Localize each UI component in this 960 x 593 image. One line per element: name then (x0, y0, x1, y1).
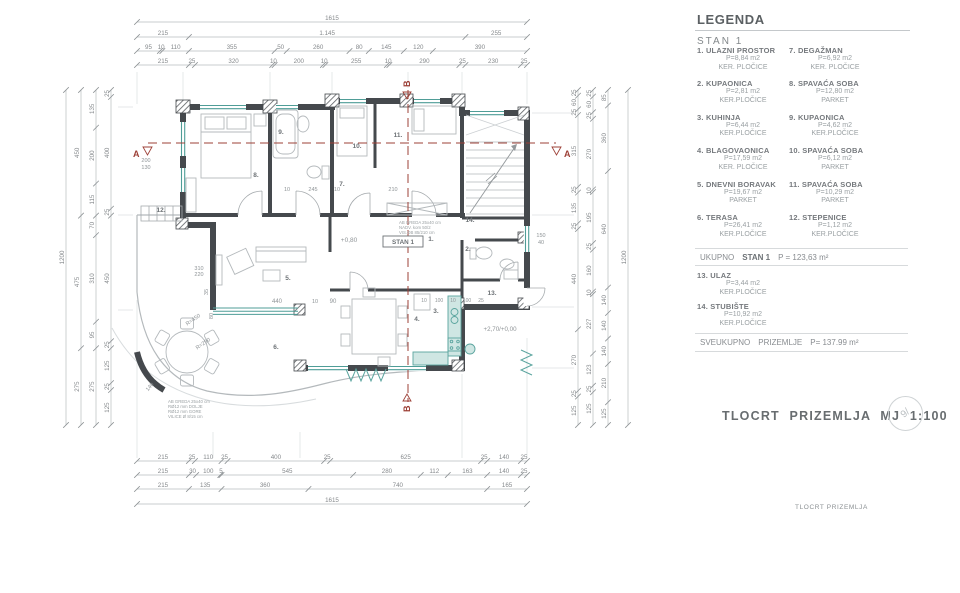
bed (201, 114, 266, 178)
dimension-text: 640 (601, 224, 608, 235)
dimension-text: 120 (413, 44, 424, 51)
room-number-label: 3. (433, 308, 439, 315)
dimension-text: 25 (104, 89, 111, 96)
dimension-text: 95 (89, 331, 96, 338)
legend-entry: 11. SPAVAĆA SOBAP=10,29 m2PARKET (789, 180, 897, 206)
dimension-text: 1615 (325, 15, 339, 22)
dimension-text: 1615 (325, 497, 339, 504)
section-letter-b: B (402, 405, 412, 412)
divider (695, 351, 908, 352)
plan-dimension-text: 40 (538, 240, 544, 246)
legend-entry: 7. DEGAŽMANP=6,92 m2KER. PLOČICE (789, 46, 897, 72)
dimension-text: 25 (571, 222, 578, 229)
dimension-text: 275 (74, 381, 81, 392)
dimension-text: 25 (571, 108, 578, 115)
plan-dimension-text: +2,70/+0,00 (483, 326, 517, 333)
dimension-text: 135 (200, 482, 211, 489)
room-number-label: 9. (278, 129, 284, 136)
sink (297, 116, 309, 132)
plan-dimension-text: 100 (463, 298, 472, 304)
wardrobe (186, 178, 196, 212)
dimension-text: 140 (499, 454, 510, 461)
dimension-text: 210 (601, 377, 608, 388)
plan-dimension-text: 10 (421, 298, 427, 304)
grand-scope: PRIZEMLJE (758, 338, 802, 347)
plan-dimension-text: 25 (478, 298, 484, 304)
room-number-label: 2. (465, 246, 471, 253)
dimension-text: 215 (158, 30, 169, 37)
dimension-text: 85 (601, 94, 608, 101)
dimension-text: 195 (586, 212, 593, 223)
room-number-label: 7. (339, 181, 345, 188)
dimension-text: 112 (429, 468, 439, 475)
plan-dimension-text: 35 (204, 289, 210, 295)
plan-dimension-text: 100 (435, 298, 444, 304)
legend-entry-floor: PARKET (789, 164, 881, 173)
dimension-text: 25 (188, 454, 195, 461)
legend-entry-name: 9. KUPAONICA (789, 113, 897, 122)
wardrobe-x (387, 203, 447, 215)
dimension-text: 10 (586, 187, 593, 194)
legend-entry: 13. ULAZP=3,44 m2KER.PLOČICE (697, 271, 805, 297)
dimension-text: 160 (586, 265, 593, 276)
dimension-text: 320 (228, 58, 239, 65)
section-marker-triangle (552, 147, 561, 155)
legend-entry-area: P=6,92 m2 (789, 55, 881, 64)
dimension-text: 60 (586, 100, 593, 107)
room-number-label: 5. (285, 275, 291, 282)
dimension-text: 215 (158, 482, 169, 489)
window (470, 110, 504, 116)
dimension-text: 25 (221, 454, 228, 461)
plan-dimension-text: 440 (272, 299, 283, 305)
window (414, 98, 440, 104)
dimension-text: 25 (459, 58, 466, 65)
divider (695, 248, 908, 249)
room-number-label: 13. (487, 290, 496, 297)
dimension-text: 215 (158, 454, 169, 461)
section-marker-triangle (403, 394, 411, 401)
legend-entry-name: 12. STEPENICE (789, 213, 897, 222)
window (388, 365, 426, 371)
window (200, 104, 246, 110)
outer-wall-left (183, 104, 213, 310)
legend-entry-area: P=26,41 m2 (697, 222, 789, 231)
section-letter-b: B (402, 80, 412, 87)
dimension-text: 60 (571, 99, 578, 106)
window (276, 104, 298, 110)
legend-entry-area: P=3,44 m2 (697, 280, 789, 289)
total-unit: STAN 1 (742, 253, 770, 262)
dimension-text: 10 (385, 58, 392, 65)
dimension-text: 10 (270, 58, 277, 65)
room-number-label: 8. (253, 172, 259, 179)
plan-dimension-text: 90 (330, 299, 337, 305)
tv-shelf (216, 255, 222, 285)
dimension-text: 200 (294, 58, 305, 65)
coffee-table (263, 270, 280, 281)
dimension-text: 355 (227, 44, 238, 51)
dimension-text: 25 (586, 112, 593, 119)
dimension-text: 400 (271, 454, 282, 461)
dimension-text: 25 (586, 89, 593, 96)
legend-entry-name: 10. SPAVAĆA SOBA (789, 146, 897, 155)
room-number-label: 6. (273, 344, 279, 351)
section-letter-a: A (564, 149, 571, 159)
sofa (256, 247, 306, 262)
dimension-text: 200 (89, 150, 96, 161)
plan-dimension-text: 10 (312, 299, 318, 305)
dimension-text: 1200 (621, 250, 628, 264)
dimension-text: 25 (104, 383, 111, 390)
room-number-label: 1. (428, 236, 434, 243)
room-number-label: 10. (352, 143, 361, 150)
legend-title: LEGENDA (697, 12, 765, 27)
dimension-text: 10 (321, 58, 328, 65)
staircase (466, 115, 524, 214)
window (180, 168, 186, 192)
dimension-text: 110 (171, 44, 181, 51)
toilet (470, 247, 492, 259)
dimension-text: 1.145 (319, 30, 335, 37)
legend-entry-area: P=6,12 m2 (789, 155, 881, 164)
legend-entry: 8. SPAVAĆA SOBAP=12,80 m2PARKET (789, 79, 897, 105)
windows (180, 98, 530, 372)
legend-entry-name: 7. DEGAŽMAN (789, 46, 897, 55)
dimension-text: 280 (382, 468, 393, 475)
dimension-text: 80 (356, 44, 363, 51)
dimension-text: 275 (89, 381, 96, 392)
dimension-text: 625 (400, 454, 411, 461)
dimension-text: 25 (586, 385, 593, 392)
glass-wall (213, 308, 298, 314)
dimension-text: 270 (571, 354, 578, 365)
legend-entry-floor: KER. PLOČICE (789, 64, 881, 73)
entrance-door (524, 288, 546, 306)
plan-dimension-text: 245 (308, 187, 317, 193)
window (340, 98, 366, 104)
dimension-text: 125 (586, 403, 593, 414)
dimension-text: 290 (419, 58, 430, 65)
plan-inner-dimensions: +0,80+2,70/+0,004409010R=450R=2903102203… (141, 158, 545, 393)
legend-entry-name: 13. ULAZ (697, 271, 805, 280)
dimension-text: 310 (89, 273, 96, 284)
legend-entry: 10. SPAVAĆA SOBAP=6,12 m2PARKET (789, 146, 897, 172)
dimension-text: 315 (571, 145, 578, 156)
plan-dimension-text: 80 (209, 313, 215, 319)
dimension-text: 227 (586, 318, 593, 329)
dimension-text: 10 (586, 289, 593, 296)
plan-dimension-text: 10 (450, 298, 456, 304)
legend-entry-area: P=8,84 m2 (697, 55, 789, 64)
dimension-text: 255 (491, 30, 502, 37)
legend-entry-floor: KER.PLOČICE (697, 130, 789, 139)
legend-entry-floor: KER.PLOČICE (697, 320, 789, 329)
legend-entry-name: 8. SPAVAĆA SOBA (789, 79, 897, 88)
plan-dimension-text: 10 (284, 187, 290, 193)
armchair (227, 248, 254, 274)
footer-title: TLOCRT PRIZEMLJA (795, 504, 868, 511)
legend-entry-area: P=2,81 m2 (697, 88, 789, 97)
legend-entry-name: 11. SPAVAĆA SOBA (789, 180, 897, 189)
dimension-text: 25 (481, 454, 488, 461)
toilet (307, 166, 329, 179)
divider (695, 265, 908, 266)
legend-entry-area: P=10,92 m2 (697, 311, 789, 320)
dimension-text: 50 (277, 44, 284, 51)
washing-machine (504, 270, 518, 279)
room-number-labels: 1.2.3.4.5.6.7.8.9.10.11.12.13.14. (156, 129, 496, 351)
dimension-text: 230 (488, 58, 499, 65)
plan-dimension-text: +0,80 (341, 237, 358, 244)
dining-table (341, 288, 407, 366)
dimension-text: 25 (104, 208, 111, 215)
legend-entry-floor: KER. PLOČICE (697, 64, 789, 73)
dimension-chain-right: 2560253152513525440270251252560252701019… (571, 87, 631, 428)
window (180, 122, 186, 156)
legend-entry-floor: KER.PLOČICE (697, 231, 789, 240)
dimension-text: 25 (571, 89, 578, 96)
divider (695, 30, 910, 31)
page: A A B B STAN 1 16152151.1452559510110355… (0, 0, 960, 593)
dimension-text: 475 (74, 276, 81, 287)
dimension-text: 1200 (59, 250, 66, 264)
dimension-text: 270 (586, 148, 593, 159)
dimension-text: 115 (89, 194, 96, 204)
dimension-chain-left: 1200450475275135200115703109527525400254… (59, 87, 114, 428)
plan-dimension-text: 150 (536, 233, 545, 239)
divider (695, 333, 908, 334)
section-marker-triangle (143, 147, 152, 155)
legend-entry-floor: PARKET (789, 197, 881, 206)
legend-entry-floor: KER.PLOČICE (789, 130, 881, 139)
dimension-text: 163 (462, 468, 473, 475)
dimension-text: 125 (104, 360, 111, 371)
terrace-table (154, 318, 219, 386)
dimension-text: 110 (203, 454, 213, 461)
wall-piers (176, 94, 529, 371)
legend-entry-area: P=12,80 m2 (789, 88, 881, 97)
legend-entry-floor: KER. PLOČICE (697, 164, 789, 173)
grand-value: P= 137.99 m² (810, 338, 858, 347)
sheet-stamp: 9/ (888, 396, 923, 431)
plan-dimension-text: 220 (194, 272, 203, 278)
dimension-text: 25 (571, 390, 578, 397)
sink (500, 259, 514, 269)
dimension-text: 123 (586, 364, 593, 375)
room-number-label: 4. (414, 316, 420, 323)
grand-label: SVEUKUPNO (700, 338, 750, 347)
legend-entry-name: 14. STUBIŠTE (697, 302, 805, 311)
dimension-text: 390 (475, 44, 486, 51)
dimension-text: 30 (189, 468, 196, 475)
dimension-text: 125 (104, 402, 111, 413)
dimension-text: 25 (521, 454, 528, 461)
legend-entry: 9. KUPAONICAP=4,62 m2KER.PLOČICE (789, 113, 897, 139)
legend-entry-floor: PARKET (697, 197, 789, 206)
plan-dimension-text: 130 (141, 165, 150, 171)
legend-entry-floor: KER.PLOČICE (789, 231, 881, 240)
legend-entry-area: P=10,29 m2 (789, 189, 881, 198)
dimension-text: 100 (203, 468, 214, 475)
dimension-text: 260 (313, 44, 324, 51)
note-text: VILICE Ø 8/15 cm (168, 414, 203, 419)
dimension-text: 450 (74, 147, 81, 158)
dimension-text: 255 (351, 58, 362, 65)
bathtub (273, 110, 298, 158)
walls (183, 101, 527, 368)
window (524, 226, 530, 252)
total-stan-row: UKUPNOSTAN 1P = 123,63 m² (700, 253, 836, 262)
legend-entry-floor: KER.PLOČICE (697, 97, 789, 106)
grand-total-row: SVEUKUPNOPRIZEMLJEP= 137.99 m² (700, 338, 867, 347)
dimension-text: 450 (104, 273, 111, 284)
room-number-label: 12. (156, 207, 165, 214)
dimension-text: 165 (502, 482, 513, 489)
dimension-text: 440 (571, 273, 578, 284)
dimension-text: 215 (158, 58, 169, 65)
dimension-text: 95 (145, 44, 152, 51)
dimension-text: 10 (158, 44, 165, 51)
dimension-text: 135 (571, 202, 578, 213)
bed (412, 106, 456, 134)
note-text: VIS.OB 85/210 cm (399, 230, 435, 235)
dimension-text: 5 (219, 468, 223, 475)
dimension-text: 360 (260, 482, 271, 489)
legend-entry-area: P=19,67 m2 (697, 189, 789, 198)
total-label: UKUPNO (700, 253, 734, 262)
legend-entry: 14. STUBIŠTEP=10,92 m2KER.PLOČICE (697, 302, 805, 328)
dimension-text: 25 (571, 186, 578, 193)
unit-label-box: STAN 1 (383, 236, 423, 247)
dimension-text: 400 (104, 147, 111, 158)
dimension-text: 125 (601, 408, 608, 419)
dimension-text: 25 (188, 58, 195, 65)
dimension-text: 135 (89, 103, 96, 114)
dimension-text: 25 (521, 58, 528, 65)
dimension-text: 360 (601, 133, 608, 144)
plan-dimension-text: 200 (141, 158, 150, 164)
dimension-chain-bottom: 2152511025400256252514025215301005545280… (134, 454, 530, 507)
section-letter-a: A (133, 149, 140, 159)
dimension-text: 140 (601, 346, 608, 357)
unit-label: STAN 1 (392, 239, 414, 246)
dimension-text: 140 (601, 295, 608, 306)
legend-entry: 12. STEPENICEP=1,12 m2KER.PLOČICE (789, 213, 897, 239)
dimension-text: 25 (521, 468, 528, 475)
legend-entry-area: P=17,59 m2 (697, 155, 789, 164)
dimension-text: 25 (104, 341, 111, 348)
outer-wall (183, 101, 527, 368)
dimension-text: 70 (89, 221, 96, 228)
dimension-text: 140 (499, 468, 510, 475)
legend-entry-floor: PARKET (789, 97, 881, 106)
dimension-text: 125 (571, 405, 578, 416)
plan-dimension-text: 210 (388, 187, 397, 193)
room-number-label: 11. (394, 132, 403, 139)
dimension-text: 140 (601, 320, 608, 331)
dimension-text: 25 (586, 242, 593, 249)
dimension-text: 145 (381, 44, 392, 51)
dimension-chain-top: 16152151.1452559510110355502608014512039… (134, 15, 530, 68)
dimension-text: 740 (393, 482, 404, 489)
room-number-label: 14. (465, 217, 474, 224)
window (308, 365, 348, 371)
legend-entry-area: P=1,12 m2 (789, 222, 881, 231)
legend-entry-floor: KER.PLOČICE (697, 289, 789, 298)
dimension-text: 25 (324, 454, 331, 461)
total-value: P = 123,63 m² (778, 253, 828, 262)
dimension-text: 545 (282, 468, 293, 475)
dimension-text: 215 (158, 468, 169, 475)
